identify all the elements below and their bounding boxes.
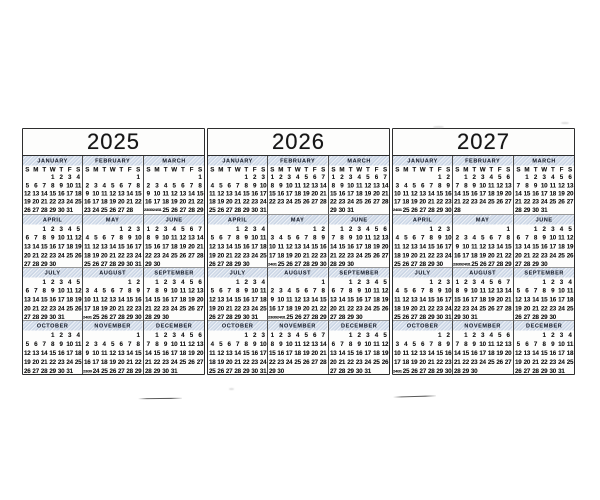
day-cell: 18 [65,243,73,250]
week-row: 27282930 [329,313,389,320]
day-cell: 20 [23,252,31,259]
day-cell: 17 [134,243,142,250]
day-cell: 13 [23,296,31,303]
weekday-label: T [427,166,435,173]
day-cell: 12 [372,234,381,241]
week-row: 1 [453,225,512,234]
day-cell: 11 [401,190,409,197]
day-cell: 1 [427,225,435,232]
week-row: 2728293031 [23,313,82,320]
day-cell: 8 [144,234,153,241]
week-row: 23/3024/312526272829 [144,206,204,214]
week-row: 3456789 [83,286,142,295]
weekday-header-row: SMTWTFS [83,166,142,174]
day-cell: 12 [410,350,418,357]
day-cell: 17 [363,296,372,303]
day-cell: 24 [250,305,258,312]
day-cell: 9 [242,234,250,241]
day-cell: 7 [225,234,233,241]
day-cell: 23 [548,305,557,312]
day-cell: 20 [410,252,418,259]
week-row: 12 [268,225,327,234]
day-cell: 13 [225,350,233,357]
day-cell: 28 [40,206,48,213]
day-cell: 10 [152,190,161,197]
month-inner: JUNE123456789101112131415161718192021222… [329,215,389,267]
day-cell: 5 [23,182,31,189]
day-cell: 20 [225,359,233,366]
day-cell: 25 [259,305,267,312]
month-2026-may: MAY1234567891011121314151617181920212223… [268,214,328,267]
day-cell: 13 [410,243,418,250]
week-row: 1 [83,173,142,181]
week-row: 2345678 [83,181,142,189]
month-inner: MAY1234567891011121314151617181920212223… [268,215,327,267]
day-cell: 16 [548,296,557,303]
day-cell: 13 [195,341,204,348]
day-cell: 2 [337,174,346,181]
day-cell: 21 [427,198,435,205]
day-cell: 8 [522,182,531,189]
month-name-label: MARCH [514,156,574,166]
day-cell: 19 [363,190,372,197]
day-cell: 8 [435,341,443,348]
month-inner: JUNE123456789101112131415161718192021222… [514,215,574,267]
day-cell: 7 [427,341,435,348]
day-cell: 13 [522,296,531,303]
day-cell: 22 [233,305,241,312]
week-row: 1 [83,331,142,340]
day-cell: 8 [337,234,346,241]
day-cell: 16 [57,190,65,197]
day-cell: 17 [57,296,65,303]
day-cell: 8 [40,287,48,294]
day-cell: 20 [504,350,512,357]
day-cell: 17 [259,350,267,357]
day-cell: 26 [170,206,179,213]
day-cell: 3 [152,182,161,189]
day-cell: 15 [242,190,250,197]
day-cell: 9 [161,287,170,294]
week-row: 13141516171819 [514,242,574,251]
week-row: 2345678 [268,286,327,295]
day-cell: 1 [319,278,327,285]
week-row: 232425262728 [83,206,142,214]
day-cell: 20 [380,243,389,250]
week-row: 11121314151617 [208,189,267,197]
day-cell: 30 [444,368,452,375]
day-cell: 13 [372,182,381,189]
weekday-label: F [187,166,196,173]
day-cell: 7 [427,182,435,189]
day-cell: 20 [216,252,224,259]
month-2025-september: SEPTEMBER1234567891011121314151617181920… [144,267,204,320]
month-inner: NOVEMBER12345678910111213141516171819202… [83,321,142,374]
day-cell: 2 [531,174,540,181]
day-cell: 8 [427,234,435,241]
day-cell: 29 [346,368,355,375]
year-title-2027: 2027 [393,129,574,156]
day-cell: 15 [152,350,161,357]
day-cell: 4 [74,174,82,181]
day-cell: 17 [259,190,267,197]
day-cell: 9 [444,182,452,189]
day-cell: 24 [57,252,65,259]
week-row: 1234 [208,278,267,287]
weekday-label: W [233,166,241,173]
day-cell: 5 [187,332,196,339]
day-cell: 18 [393,252,401,259]
month-inner: JANUARYSMTWTFS12345678910111213141516171… [393,156,452,214]
week-row: 25262728293031 [208,206,267,214]
day-cell: 27 [31,206,39,213]
day-cell: 26 [216,206,224,213]
month-2027-september: SEPTEMBER1234567891011121314151617181920… [514,267,574,320]
week-row: 78910111213 [144,286,204,295]
day-cell: 3 [557,278,566,285]
day-cell: 1 [134,332,142,339]
day-cell: 15 [540,350,549,357]
day-cell: 25 [372,305,381,312]
month-name-label: APRIL [23,215,82,225]
day-cell: 4 [65,225,73,232]
day-cell: 19 [23,198,31,205]
month-2026-june: JUNE123456789101112131415161718192021222… [329,214,389,267]
day-cell: 16 [161,350,170,357]
months-grid-2027: JANUARYSMTWTFS12345678910111213141516171… [393,156,574,374]
day-cell: 6 [178,182,187,189]
month-name-label: JULY [23,268,82,278]
day-cell: 8 [435,182,443,189]
week-row: 25262728293031 [208,367,267,375]
day-cell: 14 [40,350,48,357]
week-row: 1234 [514,278,574,287]
day-cell: 20 [329,359,338,366]
month-name-label: SEPTEMBER [329,268,389,278]
month-2026-march: MARCHSMTWTFS1234567891011121314151617181… [329,156,389,214]
day-cell: 27 [195,305,204,312]
day-cell: 18 [259,243,267,250]
day-cell: 8 [134,182,142,189]
week-row: 9101112131415 [268,295,327,304]
day-cell: 14 [427,190,435,197]
week-row: 18192021222324 [393,304,452,313]
day-cell: 26 [410,368,418,375]
month-inner: DECEMBER12345678910111213141516171819202… [514,321,574,374]
day-cell: 22 [337,252,346,259]
month-2027-may: MAY1234567891011121314151617181920212223… [453,214,513,267]
day-cell: 24/31 [277,315,286,320]
year-block-2026: 2026JANUARYSMTWTFS1234567891011121314151… [207,128,390,375]
day-cell: 16 [435,243,443,250]
week-row: 3456789 [268,233,327,242]
day-cell: 2 [48,225,56,232]
day-cell: 6 [225,341,233,348]
day-cell: 2 [355,278,364,285]
day-cell: 17 [355,243,364,250]
day-cell: 22 [242,359,250,366]
day-cell: 18 [565,296,574,303]
day-cell: 15 [504,243,512,250]
day-cell: 8 [48,182,56,189]
week-row: 28293031 [144,367,204,375]
day-cell: 4 [363,225,372,232]
day-cell: 3 [363,332,372,339]
day-cell: 1 [48,332,56,339]
month-2026-january: JANUARYSMTWTFS12345678910111213141516171… [208,156,268,214]
day-cell: 10 [57,287,65,294]
month-name-label: APRIL [393,215,452,225]
day-cell: 27 [225,368,233,375]
week-row: 27282930 [514,260,574,267]
weekday-label: T [548,166,557,173]
month-inner: MARCHSMTWTFS1234567891011121314151617181… [144,156,204,214]
week-row: 18192021222324 [208,358,267,367]
day-cell: 13 [225,190,233,197]
day-cell: 15 [540,296,549,303]
day-cell: 13 [23,243,31,250]
day-cell: 25 [259,252,267,259]
day-cell: 12 [23,350,31,357]
day-cell: 10 [161,234,170,241]
day-cell: 2 [242,225,250,232]
day-cell: 8 [531,234,540,241]
week-row: 10111213141516 [83,295,142,304]
day-cell: 2 [161,332,170,339]
day-cell: 13 [522,350,531,357]
day-cell: 22 [435,359,443,366]
day-cell: 11 [565,341,574,348]
month-2026-december: DECEMBER12345678910111213141516171819202… [329,320,389,374]
day-cell: 12 [557,182,566,189]
day-cell: 12 [187,341,196,348]
week-row: 123 [393,225,452,234]
day-cell: 3 [65,332,73,339]
day-cell: 11 [161,190,170,197]
day-cell: 10 [259,182,267,189]
week-row: 12131415161718 [208,295,267,304]
day-cell: 28 [504,305,512,312]
weekday-label: M [31,166,39,173]
month-name-label: APRIL [208,215,267,225]
day-cell: 18 [363,243,372,250]
day-cell: 24 [540,198,549,205]
day-cell: 9 [319,234,327,241]
weekday-label: M [522,166,531,173]
day-cell: 11 [565,287,574,294]
week-row: 1234 [23,331,82,340]
day-cell: 1 [504,225,512,232]
day-cell: 7 [195,225,204,232]
month-2025-july: JULY123456789101112131415161718192021222… [23,267,83,320]
months-grid-2026: JANUARYSMTWTFS12345678910111213141516171… [208,156,389,374]
day-cell: 17 [57,243,65,250]
day-cell: 9 [250,341,258,348]
week-row: 6789101112 [23,286,82,295]
week-row: 891011121314 [329,181,389,189]
day-cell: 18 [372,350,381,357]
day-cell: 10 [363,287,372,294]
day-cell: 31 [540,206,549,213]
week-row: 20212223242526 [514,251,574,260]
day-cell: 4 [208,341,216,348]
day-cell: 14 [504,287,512,294]
day-cell: 19 [23,359,31,366]
day-cell: 24 [548,252,557,259]
day-cell: 15 [134,350,142,357]
day-cell: 14 [195,234,204,241]
day-cell: 19 [208,305,216,312]
week-row: 14151617181920 [453,349,512,358]
day-cell: 14 [233,190,241,197]
day-cell: 23/30 [144,208,153,213]
day-cell: 15 [435,350,443,357]
week-row: 19202122232425 [23,198,82,206]
week-row: 23/3024/312526272829 [268,313,327,320]
day-cell: 8 [233,287,241,294]
day-cell: 18 [208,198,216,205]
day-cell: 7 [233,341,241,348]
day-cell: 19 [401,252,409,259]
month-2027-march: MARCHSMTWTFS1234567891011121314151617181… [514,156,574,214]
month-name-label: FEBRUARY [268,156,327,166]
day-cell: 16 [48,243,56,250]
day-cell: 11 [393,296,401,303]
week-row: 1234567 [453,278,512,287]
day-cell: 10 [548,234,557,241]
day-cell: 23 [346,252,355,259]
day-cell: 15 [435,190,443,197]
day-cell: 8 [40,234,48,241]
day-cell: 7 [504,278,512,285]
day-cell: 4 [401,341,409,348]
day-cell: 23 [134,305,142,312]
day-cell: 17 [65,190,73,197]
month-2026-august: AUGUST1234567891011121314151617181920212… [268,267,328,320]
day-cell: 5 [216,341,224,348]
month-2027-october: OCTOBER123456789101112131415161718192021… [393,320,453,374]
day-cell: 28 [337,368,346,375]
weekday-label: F [250,166,258,173]
day-cell: 8 [540,287,549,294]
day-cell: 22 [48,359,56,366]
month-2025-february: FEBRUARYSMTWTFS1234567891011121314151617… [83,156,143,214]
day-cell: 19 [380,296,389,303]
day-cell: 4 [170,225,179,232]
day-cell: 2 [57,332,65,339]
week-row: 45678910 [208,181,267,189]
weekday-header-row: SMTWTFS [208,166,267,174]
day-cell: 21 [380,190,389,197]
day-cell: 5 [401,287,409,294]
week-row: 22232425262728 [144,251,204,260]
day-cell: 9 [57,182,65,189]
day-cell: 24 [363,359,372,366]
month-inner: NOVEMBER12345678910111213141516171819202… [268,321,327,374]
week-row: 10111213141516 [393,189,452,197]
day-cell: 31 [65,206,73,213]
day-cell: 16 [355,296,364,303]
day-cell: 14 [380,182,389,189]
month-inner: SEPTEMBER1234567891011121314151617181920… [329,268,389,320]
month-name-label: AUGUST [83,268,142,278]
day-cell: 15 [48,350,56,357]
day-cell: 23 [48,305,56,312]
day-cell: 5 [380,332,389,339]
day-cell: 25 [208,206,216,213]
day-cell: 18 [74,190,82,197]
weekday-label: W [418,166,426,173]
day-cell: 19 [401,305,409,312]
day-cell: 24/31 [83,315,92,320]
day-cell: 2 [319,225,327,232]
week-row: 567891011 [23,340,82,349]
day-cell: 15 [40,296,48,303]
day-cell: 16 [48,296,56,303]
day-cell: 6 [31,341,39,348]
day-cell: 12 [74,287,82,294]
day-cell: 25 [402,368,410,375]
week-row: 1 [144,173,204,181]
day-cell: 6 [418,182,426,189]
day-cell: 5 [514,287,523,294]
day-cell: 19 [187,296,196,303]
week-row: 293031 [453,313,512,320]
day-cell: 21 [514,198,523,205]
day-cell: 16 [337,190,346,197]
month-2027-november: NOVEMBER12345678910111213141516171819202… [453,320,513,374]
day-cell: 10 [259,341,267,348]
weekday-header-row: SMTWTFS [268,166,327,174]
day-cell: 29 [540,368,549,375]
day-cell: 10 [444,287,452,294]
day-cell: 9 [250,182,258,189]
week-row: 78910111213 [514,181,574,189]
scan-speck [433,126,444,128]
week-row: 78910111213 [453,340,512,349]
week-row: 11121314151617 [208,349,267,358]
day-cell: 20 [178,198,187,205]
day-cell: 15 [233,243,241,250]
month-2026-february: FEBRUARYSMTWTFS1234567891011121314151617… [268,156,328,214]
weekday-label: S [393,166,401,173]
month-inner: SEPTEMBER1234567891011121314151617181920… [514,268,574,320]
day-cell: 6 [216,287,224,294]
day-cell: 9 [337,182,346,189]
day-cell: 18 [401,359,409,366]
week-row: 21222324252627 [453,198,512,206]
day-cell: 15 [134,190,142,197]
day-cell: 24 [161,252,170,259]
day-cell: 7 [531,287,540,294]
week-row: 12345 [23,278,82,287]
day-cell: 23 [540,252,549,259]
day-cell: 5 [557,174,566,181]
day-cell: 1 [337,225,346,232]
week-row: 16171819202122 [453,251,512,260]
day-cell: 3 [548,225,557,232]
day-cell: 28 [187,206,196,213]
week-row: 6789101112 [329,340,389,349]
month-name-label: OCTOBER [208,321,267,331]
day-cell: 2 [134,278,142,285]
day-cell: 21 [531,359,540,366]
day-cell: 23 [48,252,56,259]
weekday-label: S [208,166,216,173]
month-name-label: SEPTEMBER [514,268,574,278]
day-cell: 21 [225,305,233,312]
day-cell: 10 [65,341,73,348]
